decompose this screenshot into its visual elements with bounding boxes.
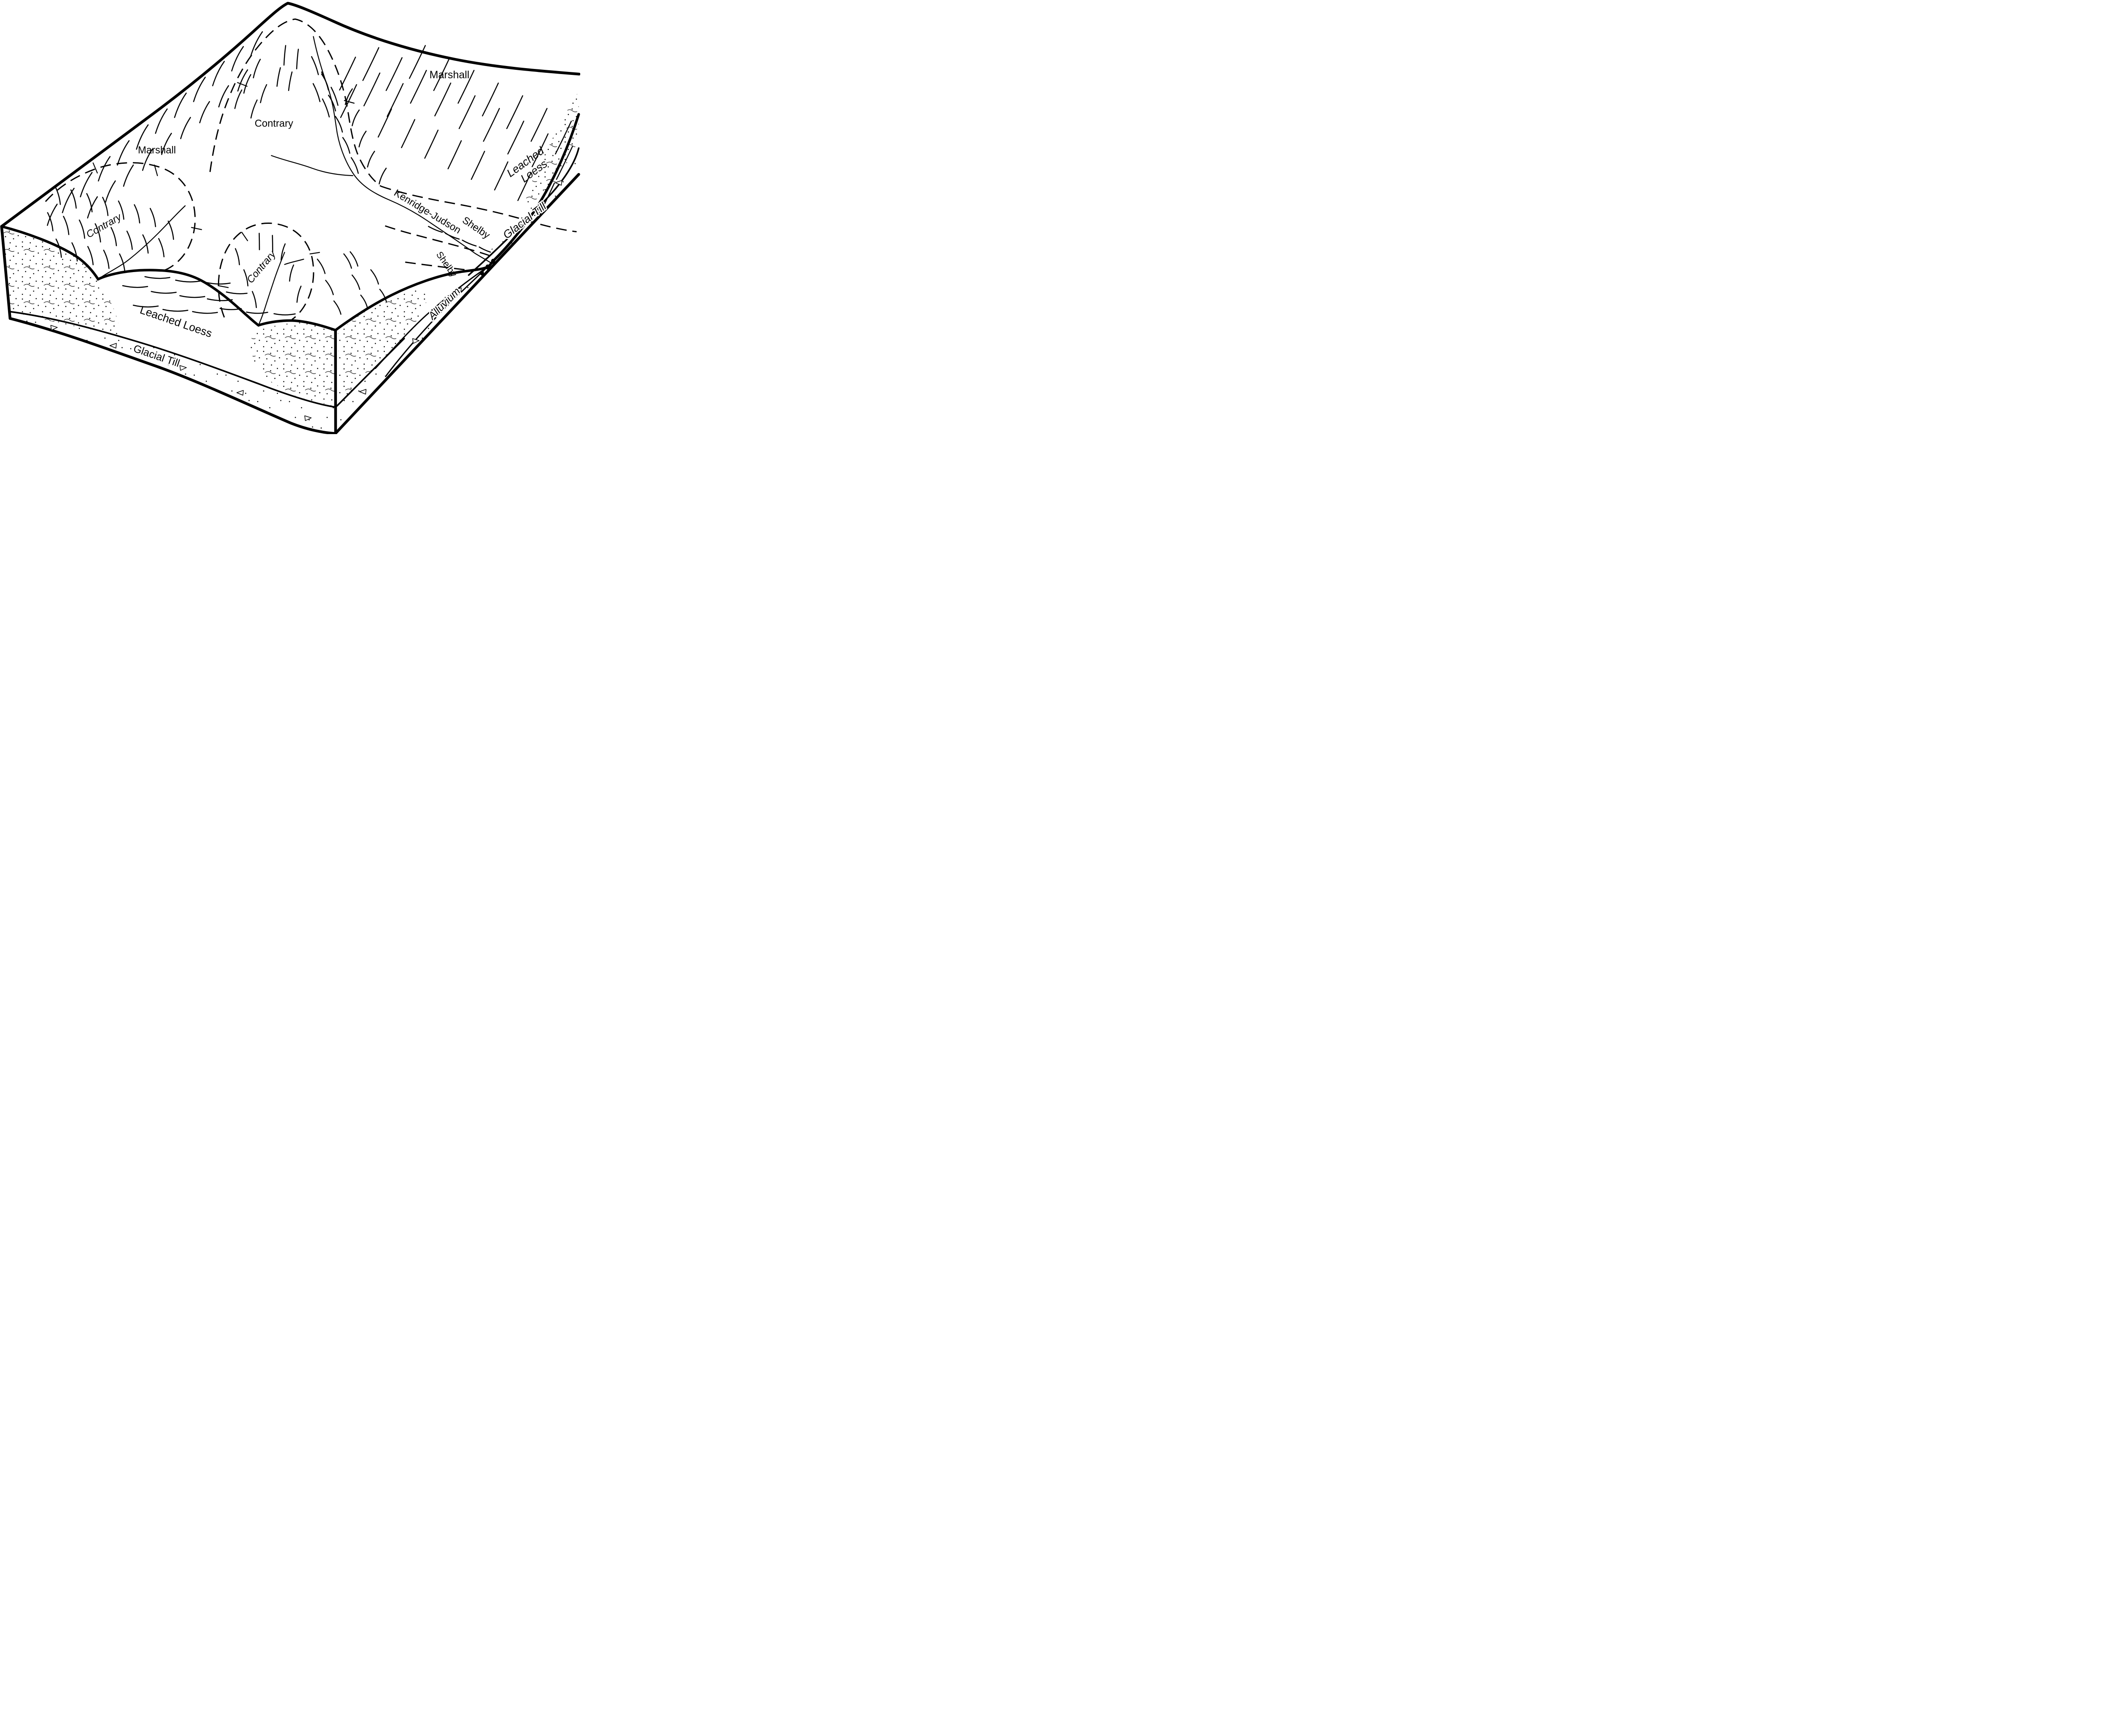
tributary-upper [271,156,353,176]
back-silhouette [2,3,579,227]
label-kenridge-judson: Kenridge-Judson [392,187,463,236]
block-diagram: Marshall Contrary Marshall Contrary Cont… [0,0,580,434]
hachures-upper-left-slope [47,32,262,226]
label-contrary-bottom: Contrary [245,248,279,286]
soil-boundaries [46,19,577,319]
diagram-canvas: Marshall Contrary Marshall Contrary Cont… [0,0,580,434]
label-contrary-left: Contrary [84,211,124,240]
label-contrary-top: Contrary [255,118,293,129]
label-marshall-left: Marshall [138,145,176,156]
label-marshall-right: Marshall [430,69,469,81]
label-leached-loess-front: Leached Loess [138,303,214,340]
label-shelby-upper: Shelby [460,215,492,241]
boundary-summit-contrary [210,19,381,186]
hachures-bottom-contrary [235,233,301,315]
label-glacial-till-right: Glacial Till [501,200,549,242]
